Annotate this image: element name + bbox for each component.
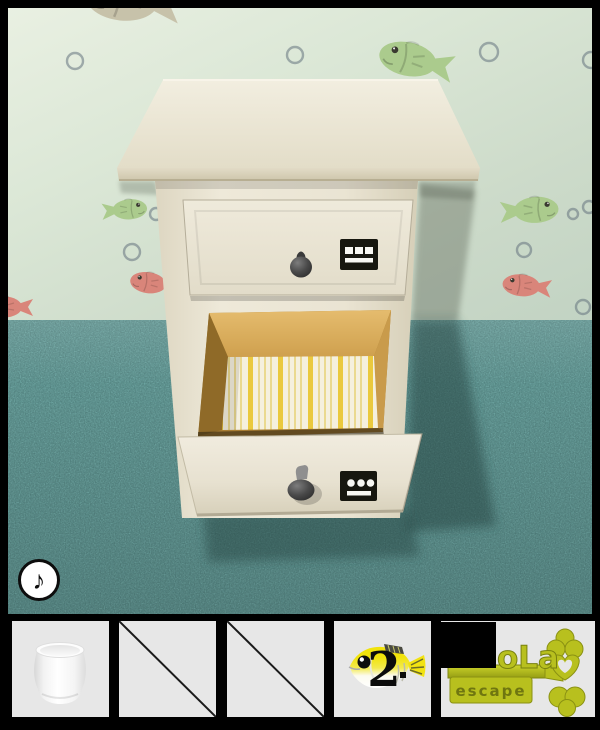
under-top-shadow bbox=[155, 181, 418, 189]
inventory-slot-2-empty[interactable] bbox=[119, 621, 216, 717]
top-drawer-sign[interactable] bbox=[340, 239, 378, 270]
music-note-icon: ♪ bbox=[33, 567, 46, 593]
white-cup-item bbox=[12, 621, 109, 717]
empty-slot-diagonal bbox=[119, 621, 216, 717]
bottom-drawer-front[interactable] bbox=[178, 434, 422, 515]
cabinet-top bbox=[117, 80, 480, 181]
inventory-slot-1-cup[interactable] bbox=[12, 621, 109, 717]
brand-key-logo: escape oLa bbox=[441, 621, 595, 717]
inventory-slot-5-logo[interactable]: escape oLa bbox=[441, 621, 595, 717]
music-button[interactable]: ♪ bbox=[18, 559, 60, 601]
cabinet bbox=[8, 8, 592, 614]
logo-brand: oLa bbox=[497, 640, 559, 676]
room-scene: ♪ bbox=[8, 8, 592, 614]
logo-black-square bbox=[441, 622, 496, 668]
fish-dot bbox=[400, 672, 406, 678]
inventory-slot-3-empty[interactable] bbox=[227, 621, 324, 717]
top-drawer[interactable] bbox=[183, 200, 413, 301]
bottom-drawer-sign[interactable] bbox=[340, 471, 377, 501]
logo-tagline: escape bbox=[455, 682, 526, 700]
empty-slot-diagonal bbox=[227, 621, 324, 717]
striped-lining[interactable] bbox=[222, 356, 378, 430]
inventory-slot-4-fish[interactable]: 2 bbox=[334, 621, 431, 717]
bottom-drawer-interior[interactable] bbox=[198, 310, 391, 440]
inventory-bar: 2 escape bbox=[0, 614, 600, 730]
fish-count-label: 2 bbox=[367, 642, 400, 698]
fish-counter-item: 2 bbox=[334, 621, 431, 717]
game-screen: ♪ bbox=[0, 0, 600, 730]
